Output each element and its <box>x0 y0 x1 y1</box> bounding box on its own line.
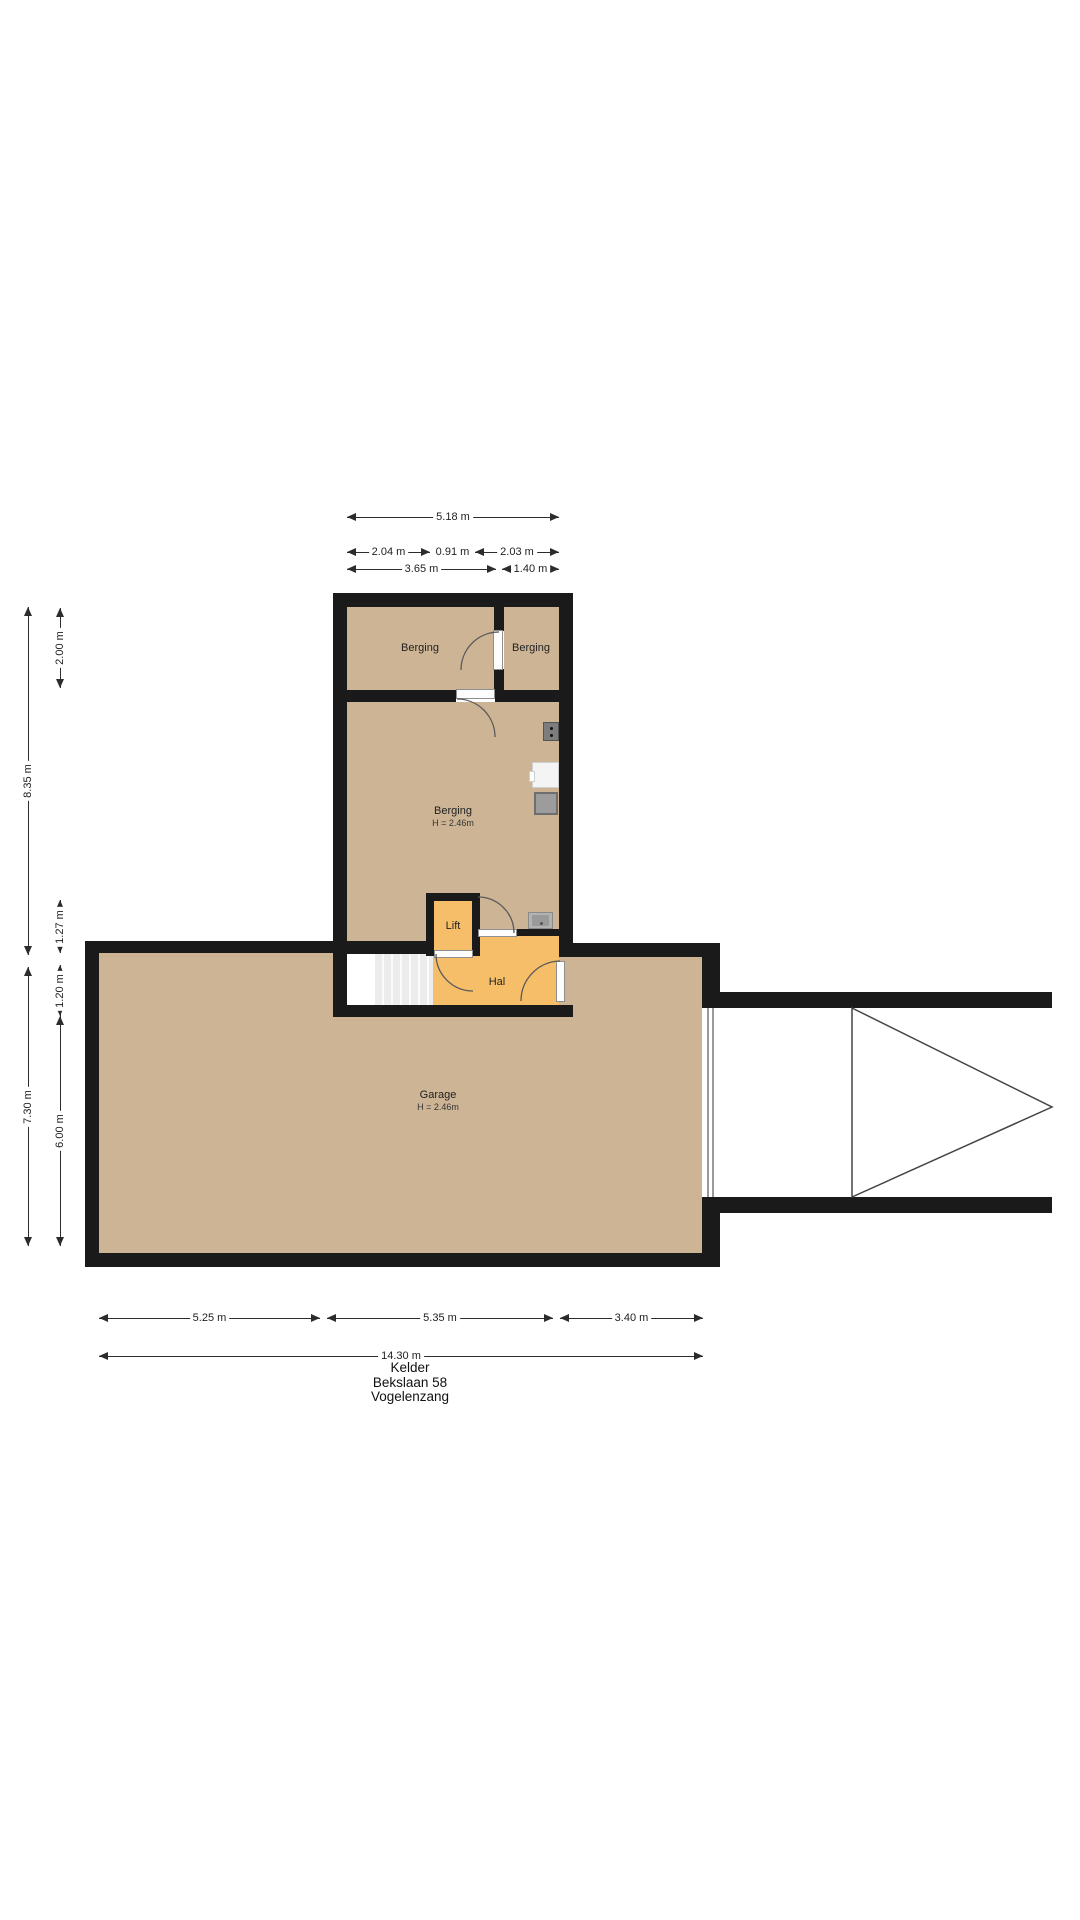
room-ceiling-height: H = 2.46m <box>417 1101 459 1113</box>
dim-left-8-35: 8.35 m <box>23 607 33 955</box>
dim-label: 1.27 m <box>54 907 66 947</box>
dim-label: 7.30 m <box>22 1087 34 1127</box>
dim-label: 5.18 m <box>433 511 473 523</box>
tower-bottom-wall <box>333 1005 573 1017</box>
room-name: Lift <box>446 920 461 932</box>
dim-label: 2.00 m <box>54 628 66 668</box>
berging-divider-wall-upper <box>494 607 504 631</box>
dim-label: 5.35 m <box>420 1312 460 1324</box>
dim-left-2-00: 2.00 m <box>55 608 65 688</box>
room-label-hal: Hal <box>489 976 506 988</box>
room-label-berging-top-right: Berging <box>512 642 550 654</box>
hal-floor <box>480 935 559 1005</box>
driveway-top-wall <box>720 992 1052 1008</box>
dim-top-3-65: 3.65 m <box>347 564 496 574</box>
garage-left-wall <box>85 941 99 1267</box>
dim-left-7-30: 7.30 m <box>23 967 33 1246</box>
dim-label: 1.20 m <box>54 971 66 1011</box>
driveway-arrow <box>852 1008 1052 1197</box>
dim-bottom-5-35: 5.35 m <box>327 1313 553 1323</box>
dim-bottom-5-25: 5.25 m <box>99 1313 320 1323</box>
room-ceiling-height: H = 2.46m <box>432 817 474 829</box>
title-block: Kelder Bekslaan 58 Vogelenzang <box>371 1361 449 1405</box>
tower-right-wall <box>559 593 573 957</box>
dim-left-1-27: 1.27 m <box>55 900 65 953</box>
stair-landing <box>347 954 375 1005</box>
dim-top-2-03: 2.03 m <box>475 547 559 557</box>
berging-main-door <box>456 689 495 699</box>
room-name: Berging <box>434 805 472 817</box>
dim-top-1-40: 1.40 m <box>502 564 559 574</box>
dim-label: 8.35 m <box>22 761 34 801</box>
hal-garage-door <box>556 961 565 1002</box>
dim-label: 3.65 m <box>402 563 442 575</box>
dim-left-6-00: 6.00 m <box>55 1016 65 1246</box>
garage-top-wall-right <box>559 943 720 957</box>
berging-separating-wall-right <box>495 690 559 702</box>
dim-left-1-20: 1.20 m <box>55 965 65 1016</box>
lift-door <box>434 950 473 958</box>
hal-floor-under-lift <box>433 956 480 1005</box>
floorplan-canvas: Berging Berging Berging H = 2.46m Lift H… <box>0 0 1080 1920</box>
dim-bottom-3-40: 3.40 m <box>560 1313 703 1323</box>
garage-right-wall-lower <box>702 1197 720 1267</box>
staircase <box>375 954 433 1005</box>
room-name: Hal <box>489 976 506 988</box>
dim-label: 1.40 m <box>511 563 551 575</box>
lift-left-wall <box>426 893 434 956</box>
garage-top-wall-left <box>85 941 347 953</box>
driveway-bottom-wall <box>720 1197 1052 1213</box>
stairwell-top-wall <box>333 941 433 954</box>
floor-title: Kelder <box>371 1361 449 1376</box>
berging-divider-door <box>493 630 503 670</box>
room-label-lift: Lift <box>446 920 461 932</box>
dim-label: 6.00 m <box>54 1111 66 1151</box>
berging-separating-wall-left <box>347 690 456 702</box>
intercom-panel-icon <box>528 912 553 929</box>
room-name: Garage <box>420 1089 457 1101</box>
room-name: Berging <box>512 642 550 654</box>
room-label-berging-main: Berging H = 2.46m <box>432 805 474 829</box>
room-name: Berging <box>401 642 439 654</box>
berging-divider-wall-lower <box>494 669 504 690</box>
dim-label: 0.91 m <box>433 546 473 558</box>
dim-label: 3.40 m <box>612 1312 652 1324</box>
dim-top-0-91: 0.91 m <box>434 547 471 557</box>
garage-door <box>702 1008 720 1197</box>
room-label-garage: Garage H = 2.46m <box>417 1089 459 1113</box>
dim-label: 2.04 m <box>369 546 409 558</box>
electrical-panel-icon <box>543 722 559 741</box>
garage-right-wall-upper <box>702 943 720 1008</box>
dim-label: 5.25 m <box>190 1312 230 1324</box>
lift-right-wall <box>472 893 480 956</box>
address-street: Bekslaan 58 <box>371 1376 449 1391</box>
room-label-berging-top-left: Berging <box>401 642 439 654</box>
boiler-icon <box>532 762 559 788</box>
garage-bottom-wall <box>85 1253 720 1267</box>
storage-unit-icon <box>534 792 558 815</box>
hal-top-wall <box>516 929 559 936</box>
dim-top-total: 5.18 m <box>347 512 559 522</box>
dim-top-2-04: 2.04 m <box>347 547 430 557</box>
dim-label: 2.03 m <box>497 546 537 558</box>
tower-top-wall <box>333 593 573 607</box>
hal-berging-door <box>478 929 517 937</box>
address-city: Vogelenzang <box>371 1390 449 1405</box>
